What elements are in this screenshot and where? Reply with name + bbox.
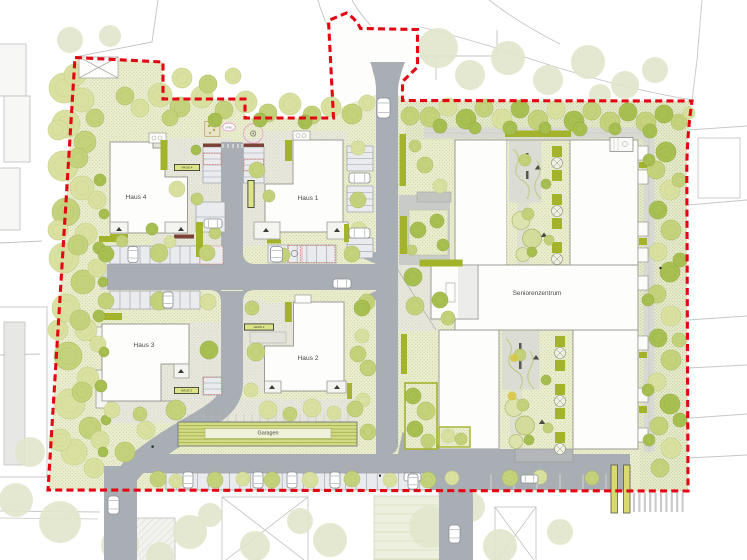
svg-text:Garagen: Garagen [258,431,279,437]
svg-text:Seniorenzentrum: Seniorenzentrum [513,290,562,297]
svg-text:Haus 2: Haus 2 [298,355,319,362]
svg-text:SPIEL: SPIEL [225,126,233,130]
svg-text:Haus 4: Haus 4 [126,194,147,201]
svg-text:Haus 3: Haus 3 [134,342,155,349]
svg-text:HAUS 2: HAUS 2 [254,325,265,329]
svg-text:Haus 1: Haus 1 [298,195,319,202]
svg-text:HAUS 4: HAUS 4 [182,166,193,170]
svg-text:HAUS 3: HAUS 3 [181,389,192,393]
